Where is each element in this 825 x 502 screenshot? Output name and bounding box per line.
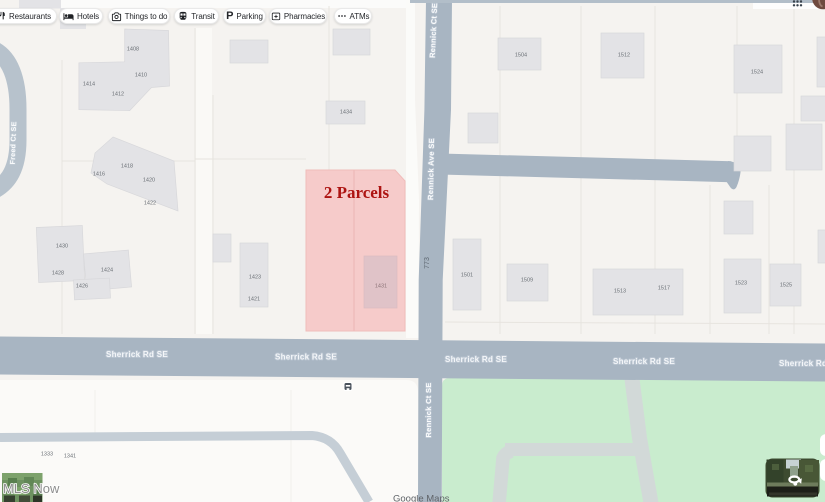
- svg-text:1412: 1412: [112, 91, 124, 97]
- svg-text:1513: 1513: [614, 288, 626, 294]
- svg-text:Sherrick Rd SE: Sherrick Rd SE: [106, 350, 168, 359]
- svg-text:1424: 1424: [101, 267, 113, 273]
- svg-text:1422: 1422: [144, 200, 156, 206]
- svg-text:Freed Ct SE: Freed Ct SE: [10, 121, 18, 164]
- svg-text:Rennick Ave SE: Rennick Ave SE: [426, 138, 436, 200]
- svg-text:1333: 1333: [41, 451, 53, 457]
- svg-text:Rennick Ct SE: Rennick Ct SE: [424, 382, 433, 437]
- svg-text:1523: 1523: [735, 280, 747, 286]
- svg-text:1416: 1416: [93, 171, 105, 177]
- svg-text:Sherrick Rd SE: Sherrick Rd SE: [779, 359, 825, 368]
- svg-text:Google Maps: Google Maps: [393, 494, 450, 502]
- svg-text:1517: 1517: [658, 285, 670, 291]
- svg-text:1421: 1421: [248, 296, 260, 302]
- svg-text:1430: 1430: [56, 243, 68, 249]
- svg-text:Sherrick Rd SE: Sherrick Rd SE: [445, 355, 507, 364]
- svg-text:2 Parcels: 2 Parcels: [324, 183, 390, 202]
- svg-text:MLS Now: MLS Now: [3, 481, 60, 496]
- svg-text:1414: 1414: [83, 81, 95, 87]
- svg-text:1341: 1341: [64, 453, 76, 459]
- svg-text:1423: 1423: [249, 274, 261, 280]
- svg-text:773: 773: [424, 257, 431, 269]
- svg-text:1431: 1431: [375, 283, 387, 289]
- svg-text:1408: 1408: [127, 46, 139, 52]
- svg-text:1410: 1410: [135, 72, 147, 78]
- svg-text:1434: 1434: [340, 109, 352, 115]
- svg-text:Sherrick Rd SE: Sherrick Rd SE: [275, 353, 337, 362]
- svg-text:1426: 1426: [76, 283, 88, 289]
- svg-text:1524: 1524: [751, 69, 763, 75]
- svg-text:1509: 1509: [521, 277, 533, 283]
- svg-text:1512: 1512: [618, 52, 630, 58]
- svg-text:1418: 1418: [121, 163, 133, 169]
- svg-text:1501: 1501: [461, 272, 473, 278]
- svg-text:1525: 1525: [780, 282, 792, 288]
- svg-text:1428: 1428: [52, 270, 64, 276]
- svg-text:Sherrick Rd SE: Sherrick Rd SE: [613, 357, 675, 366]
- svg-text:1504: 1504: [515, 52, 527, 58]
- svg-text:1420: 1420: [143, 177, 155, 183]
